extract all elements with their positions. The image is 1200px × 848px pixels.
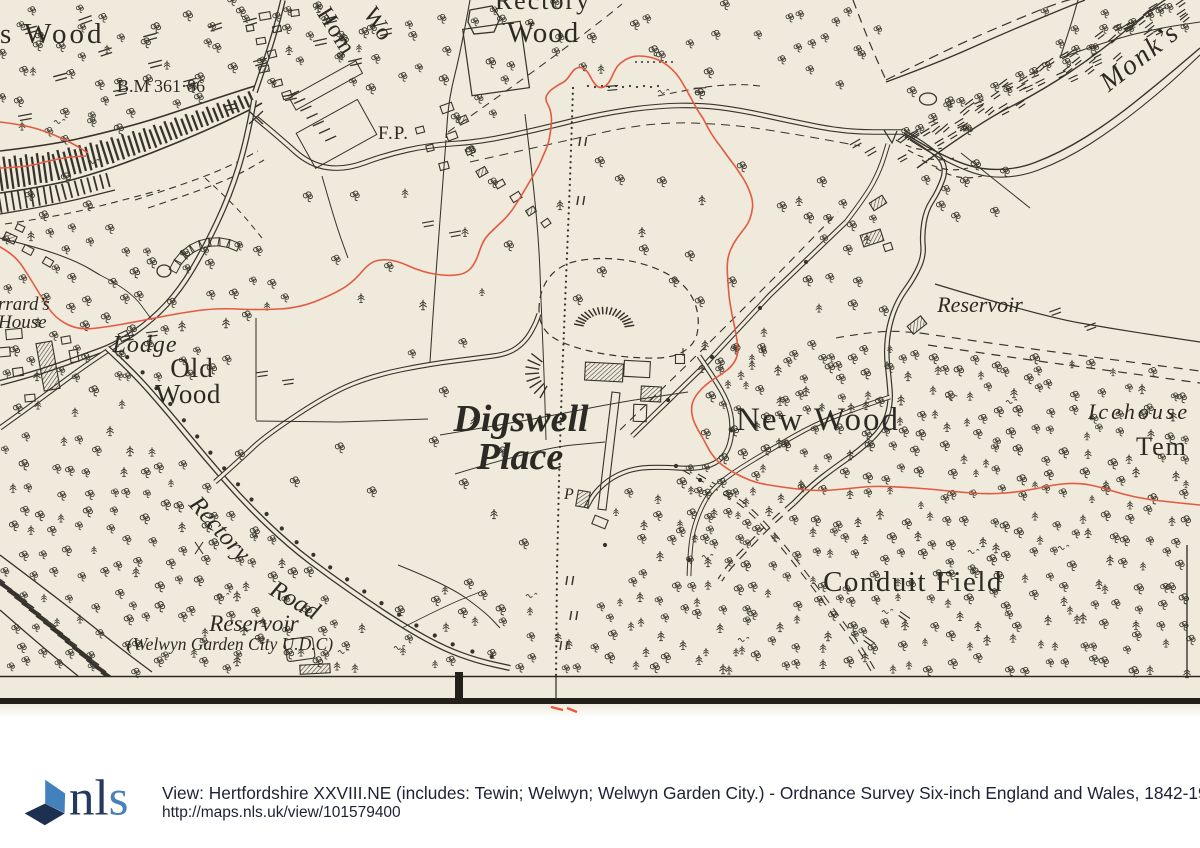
svg-text:View: Hertfordshire XXVIII.NE: View: Hertfordshire XXVIII.NE (includes:… (162, 783, 1200, 803)
svg-text:s Wood: s Wood (0, 18, 105, 50)
svg-text:Rectory: Rectory (495, 0, 591, 15)
svg-text:nls: nls (69, 771, 129, 827)
svg-text:House: House (0, 312, 47, 333)
svg-text:Wood: Wood (155, 379, 221, 409)
svg-text:Icehouse: Icehouse (1087, 399, 1190, 424)
svg-text:P: P (563, 486, 574, 503)
svg-text:B.M 361·86: B.M 361·86 (117, 76, 205, 96)
svg-text:Reservoir: Reservoir (936, 292, 1023, 317)
svg-text:Place: Place (476, 436, 564, 478)
svg-text:Lodge: Lodge (112, 332, 178, 358)
svg-text:Reservoir: Reservoir (208, 611, 299, 636)
svg-text:Wood: Wood (507, 17, 580, 49)
svg-text:Conduit Field: Conduit Field (823, 566, 1003, 598)
svg-text:Tem: Tem (1136, 432, 1188, 461)
svg-text:http://maps.nls.uk/view/101579: http://maps.nls.uk/view/101579400 (162, 804, 401, 821)
svg-text:New Wood: New Wood (736, 402, 900, 438)
svg-text:(Welwyn Garden City U.D.C): (Welwyn Garden City U.D.C) (127, 634, 333, 654)
svg-text:Digswell: Digswell (452, 398, 589, 440)
svg-text:F.P.: F.P. (378, 123, 409, 144)
